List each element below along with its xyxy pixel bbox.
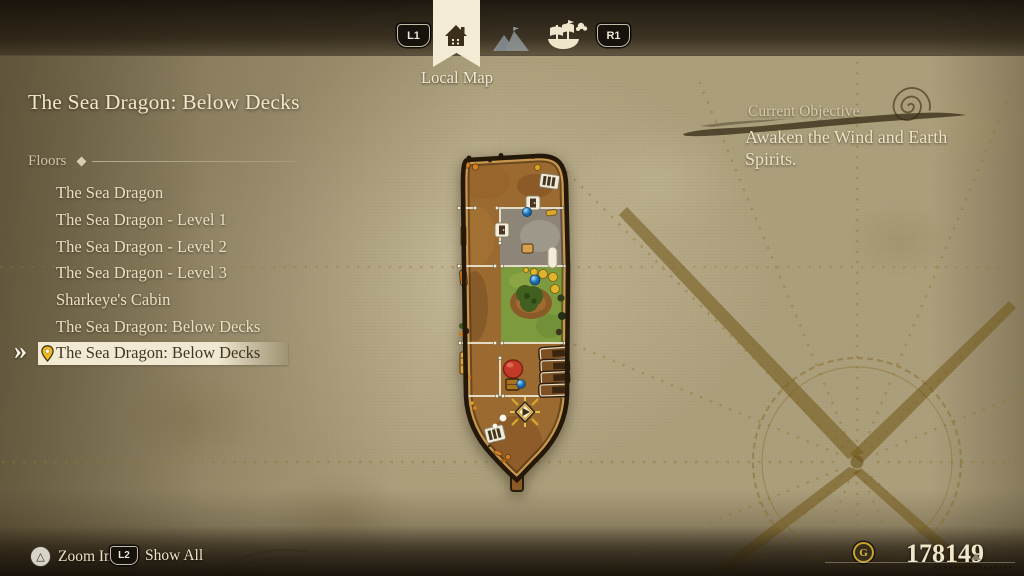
floors-list: The Sea Dragon The Sea Dragon - Level 1 … (0, 180, 360, 367)
objective-text: Awaken the Wind and Earth Spirits. (745, 126, 963, 171)
map-pin-icon (41, 345, 54, 362)
local-map-label: Local Map (398, 68, 516, 88)
floor-item-label: The Sea Dragon - Level 2 (56, 237, 227, 257)
floor-item-label: The Sea Dragon: Below Decks (56, 343, 260, 363)
r1-badge[interactable]: R1 (597, 24, 630, 47)
red-pot-marker (504, 360, 523, 378)
floor-item[interactable]: The Sea Dragon - Level 2 (0, 233, 360, 260)
tab-area-map[interactable] (492, 26, 530, 52)
floor-item-label: The Sea Dragon (56, 183, 163, 203)
floors-label: Floors (28, 153, 66, 170)
show-all-button[interactable]: L2 Show All (110, 546, 203, 565)
nav-triangle-icon (971, 553, 981, 560)
door-icon (495, 223, 509, 237)
floor-item-label: The Sea Dragon - Level 3 (56, 263, 227, 283)
zoom-in-button[interactable]: △ Zoom In (30, 546, 112, 567)
player-marker-icon (510, 397, 540, 427)
bed-icons (539, 347, 569, 397)
selected-floor-item[interactable]: » The Sea Dragon: Below Decks (0, 340, 360, 367)
triangle-button-icon: △ (30, 546, 51, 567)
floors-header: Floors (28, 153, 295, 169)
tab-world-map[interactable] (544, 20, 588, 53)
floor-item-label: The Sea Dragon: Below Decks (56, 317, 260, 337)
ship-icon (548, 20, 587, 49)
diamond-icon (77, 156, 87, 166)
floor-item[interactable]: The Sea Dragon: Below Decks (0, 313, 360, 340)
ship-map (445, 146, 585, 498)
floor-item[interactable]: The Sea Dragon - Level 1 (0, 207, 360, 234)
floors-divider (92, 161, 295, 162)
floor-item[interactable]: The Sea Dragon (0, 180, 360, 207)
floor-item[interactable]: The Sea Dragon - Level 3 (0, 260, 360, 287)
zoom-in-label: Zoom In (58, 548, 112, 566)
page-title: The Sea Dragon: Below Decks (28, 90, 300, 115)
l1-badge[interactable]: L1 (397, 24, 430, 47)
stairs-icon (539, 173, 560, 190)
floor-item[interactable]: Sharkeye's Cabin (0, 287, 360, 314)
caption-marks (934, 566, 1012, 569)
currency-underline (825, 562, 1015, 563)
currency-display: G (853, 542, 874, 563)
floor-item-label: The Sea Dragon - Level 1 (56, 210, 227, 230)
page-root: L1 R1 Local Map The (0, 0, 1024, 576)
selection-chevron-icon: » (14, 336, 27, 366)
objective-heading: Current Objective (748, 103, 859, 121)
l2-badge: L2 (110, 546, 138, 565)
show-all-label: Show All (145, 547, 203, 565)
floor-item-label: Sharkeye's Cabin (56, 290, 170, 310)
mountain-icon (493, 27, 529, 51)
currency-coin-icon: G (853, 542, 874, 563)
house-icon (443, 24, 469, 48)
